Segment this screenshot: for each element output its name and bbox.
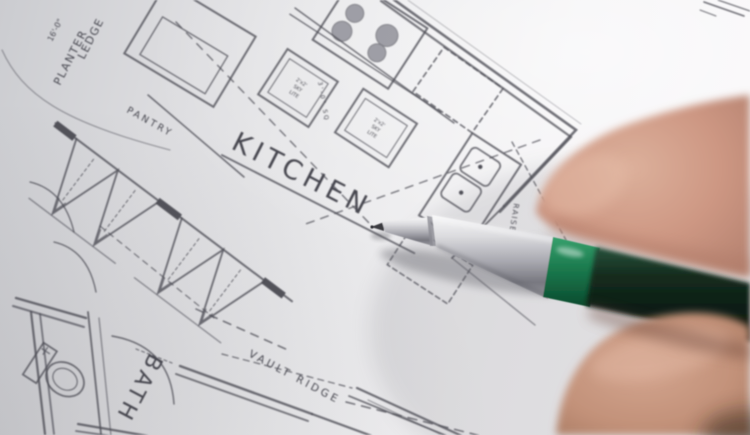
pen-tip-shadow — [371, 232, 391, 240]
pen-ball-point — [370, 225, 373, 228]
hand-and-pen — [0, 0, 750, 435]
photo-canvas: PLANTER LEDGE 16'-0" PANTRY — [0, 0, 750, 435]
